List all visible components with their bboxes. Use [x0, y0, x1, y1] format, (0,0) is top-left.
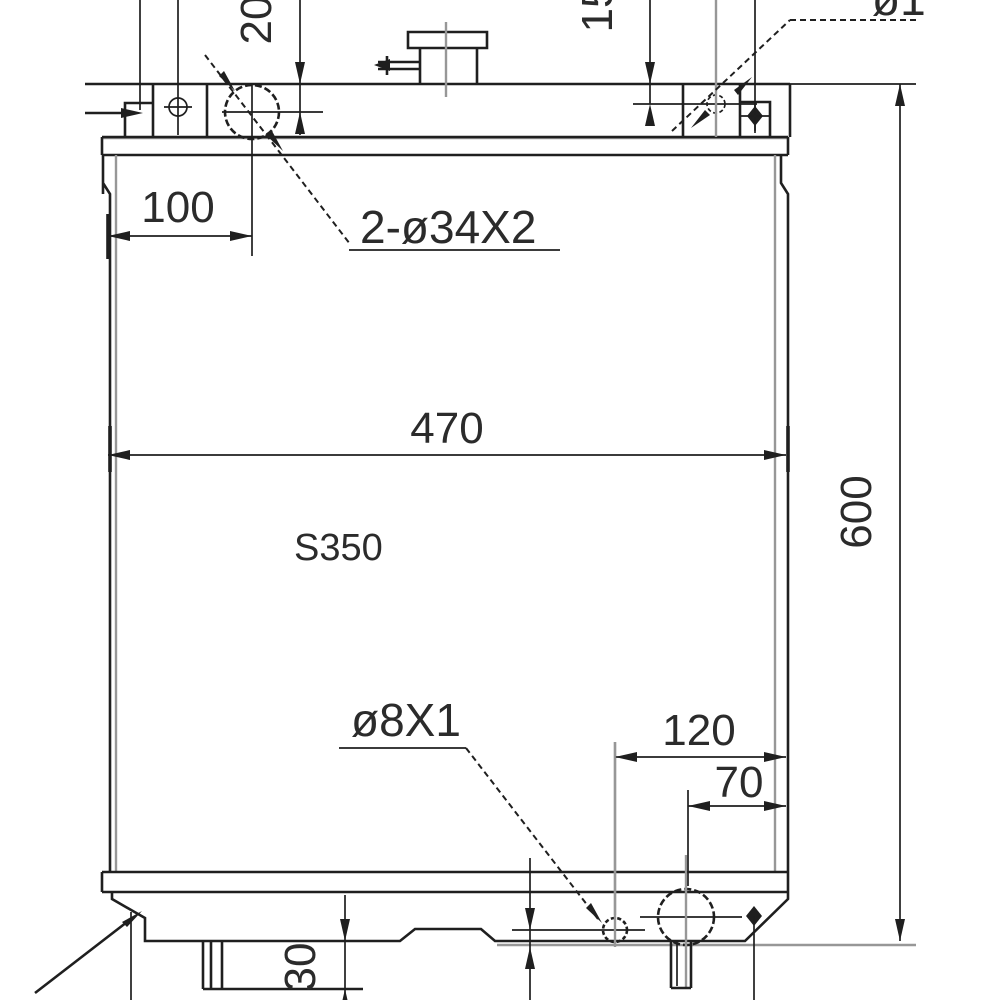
callout-drain-pipe: ø8X1 [339, 694, 466, 748]
radiator-engineering-drawing: 100 20 15 470 600 120 [0, 0, 1000, 1000]
dim-inlet-offset-x: 100 [107, 183, 252, 259]
radiator-core [103, 155, 788, 872]
dim-15-label: 15 [573, 0, 622, 32]
drain-height-dim [525, 858, 535, 1000]
drain-pipe-circle [466, 742, 645, 947]
dim-100-label: 100 [141, 183, 214, 232]
callout-o8x1-label: ø8X1 [351, 694, 461, 746]
dim-20-label: 20 [232, 0, 281, 44]
dim-470-label: 470 [410, 404, 483, 453]
callout-inlet-pipes: 2-ø34X2 [349, 201, 560, 253]
dim-bottom-bracket-depth: 30 [276, 895, 350, 1000]
drawing-canvas: 100 20 15 470 600 120 [0, 0, 1000, 1000]
dim-bracket-hole-drop: 15 [573, 0, 655, 126]
overflow-pipe [374, 56, 420, 75]
callout-bracket-hole-label: ø1 [872, 0, 926, 25]
dim-drain-from-edge: 120 [615, 706, 786, 915]
dim-overall-height: 600 [790, 84, 916, 941]
core-model-label: S350 [294, 527, 383, 569]
dim-inlet-drop: 20 [232, 0, 305, 135]
left-mounting-bracket [85, 0, 207, 137]
drain-leader-line [466, 748, 598, 919]
outlet-stub [671, 941, 691, 988]
dim-120-label: 120 [662, 706, 735, 755]
callout-2-o34x2-label: 2-ø34X2 [360, 201, 536, 253]
callout-bracket-hole: ø1 [872, 0, 926, 25]
bottom-tank [112, 892, 916, 945]
filler-neck [408, 22, 487, 97]
bottom-left-leader [35, 911, 142, 1000]
dim-70-label: 70 [715, 758, 764, 807]
dim-30-label: 30 [276, 943, 325, 992]
dim-outlet-from-edge: 70 [688, 758, 786, 886]
bottom-hole-center-mark [746, 906, 762, 1000]
dim-600-label: 600 [832, 475, 881, 548]
dim-core-width: 470 [108, 404, 788, 472]
